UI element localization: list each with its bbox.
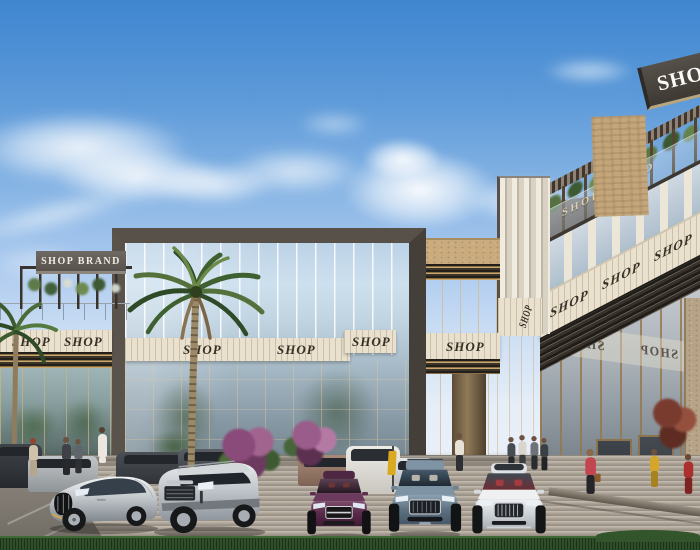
car-grille [410,500,441,514]
shop-sign: SHOP [518,304,536,330]
mid-gold-louvers [424,264,500,280]
shop-sign: SHOP [602,259,641,292]
car-grille [494,503,524,518]
mid-parapet [424,238,500,266]
car-wheel [451,504,461,532]
car-windshield [317,479,362,494]
bush-purple [282,412,344,470]
person-yellow [647,449,661,487]
person-woman-beige [26,438,40,476]
mid-fascia-band: SHOP [424,333,500,359]
corner-fascia: SHOP [498,298,542,336]
handbag [595,474,601,482]
car-wheel [472,505,482,533]
shop-sign: SHOP [64,335,103,348]
car-silver-sedan [44,452,162,535]
car-purple-sedan [306,468,372,541]
car-silver-suv [150,436,270,540]
car-headlight [526,501,539,506]
car-headlight [479,501,492,506]
grass-mound [596,530,700,542]
car-white-sedan [470,460,548,546]
grass-strip [0,536,700,550]
reflected-shop-sign: SHOP [639,342,679,360]
car-wheel [307,510,316,534]
car-wheel [362,510,371,534]
top-right-sign-text: SHOP [654,57,700,96]
cloud [298,112,370,136]
tree-red [646,390,700,456]
car-wheel [536,505,546,533]
shop-sign: SHOP [446,340,485,353]
person-woman-red [681,454,696,494]
architectural-render: SHOP BRAND SHOP SHOP SHOP SHOP SHOP SHOP… [0,0,700,550]
stone-tower [591,115,648,217]
left-brand-sign-text: SHOP BRAND [41,256,121,267]
mid-louver2 [424,359,500,374]
cloud [362,138,442,180]
car-wheel [389,504,399,532]
mid-upper-glass [424,280,500,333]
shop-sign: SHOP [654,231,693,264]
car-bluegray-suv [388,458,462,539]
person-woman-pink-jacket [582,449,599,494]
car-windshield [482,473,535,489]
left-brand-sign: SHOP BRAND [36,251,126,274]
car-windshield [398,470,451,486]
